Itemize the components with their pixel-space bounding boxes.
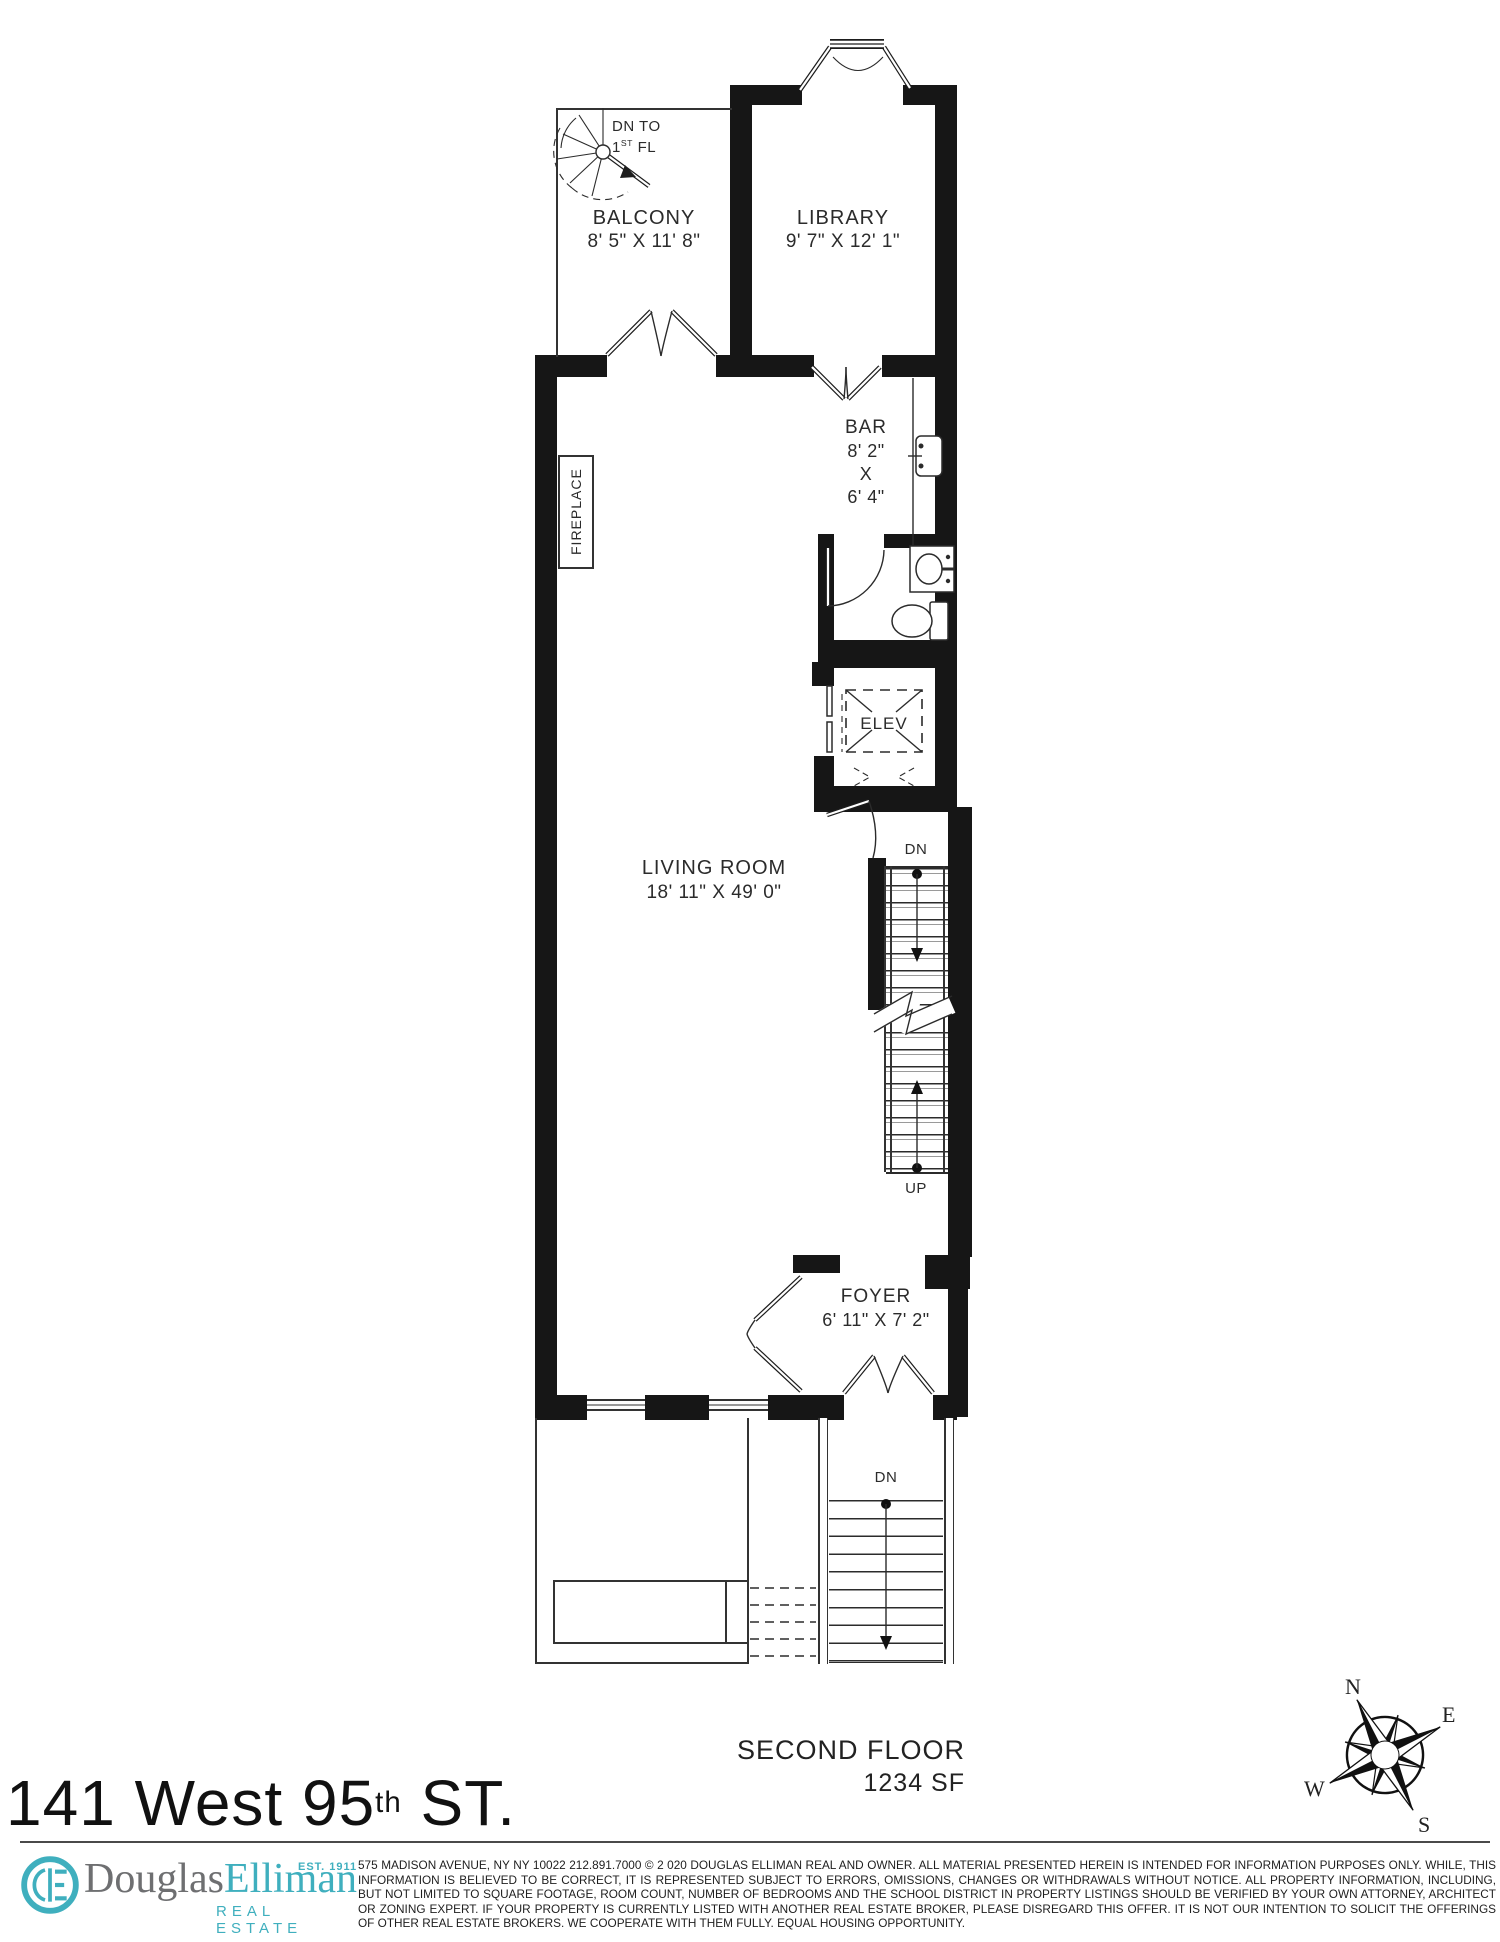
douglas-elliman-monogram-icon xyxy=(20,1855,80,1915)
stairs-dn-label: DN xyxy=(886,841,946,858)
elevator-label: ELEV xyxy=(834,714,934,734)
spiral-stair-note-line1: DN TO xyxy=(612,118,661,135)
floorplan-page: DN TO 1ST FL BALCONY 8' 5" X 11' 8" LIBR… xyxy=(0,0,1500,1942)
foyer-label: FOYER xyxy=(776,1286,976,1308)
window-living-room-right xyxy=(709,1399,768,1411)
wall-balcony-library-divider xyxy=(730,85,752,375)
stair-stringer xyxy=(890,866,892,1172)
stoop-dn-label: DN xyxy=(856,1469,916,1486)
wall-livingroom-top-left xyxy=(535,355,607,377)
floor-title: SECOND FLOOR xyxy=(665,1735,965,1766)
compass-s-label: S xyxy=(1418,1812,1430,1838)
wall-foyer-topleft-stub xyxy=(793,1255,840,1273)
foyer-entry-doors xyxy=(844,1356,933,1393)
wall-bottom-b xyxy=(645,1395,709,1420)
toilet-bowl xyxy=(892,605,932,637)
terrace-planter xyxy=(553,1580,749,1644)
wall-elev-left-stub-top xyxy=(812,662,834,686)
bar-dim3: 6' 4" xyxy=(816,487,916,508)
wall-bottom-a xyxy=(535,1395,587,1420)
elevator-door xyxy=(827,686,832,716)
stoop-rail-right xyxy=(944,1418,954,1664)
library-dims: 9' 7" X 12' 1" xyxy=(743,231,943,253)
wall-powder-elev-divider xyxy=(818,640,957,668)
footer-divider-line xyxy=(20,1841,1490,1843)
wall-bottom-c xyxy=(768,1395,844,1420)
compass-e-label: E xyxy=(1442,1702,1455,1728)
stoop-rail-left xyxy=(818,1418,828,1664)
library-bay-window xyxy=(800,44,910,90)
wall-library-top-left xyxy=(730,85,802,105)
wall-powder-top xyxy=(884,534,935,548)
compass-rose-icon xyxy=(1302,1672,1469,1839)
balcony-label: BALCONY xyxy=(544,207,744,230)
wall-elev-bottom xyxy=(818,786,957,812)
window-living-room-left xyxy=(587,1399,645,1411)
stair-stringer xyxy=(943,866,945,1172)
property-address-title: 141 West 95th ST. xyxy=(6,1766,516,1840)
wall-right-stairs xyxy=(948,807,972,1257)
floor-summary: SECOND FLOOR 1234 SF xyxy=(665,1735,965,1798)
spiral-stair-note-line2: 1ST FL xyxy=(612,138,656,156)
wall-foyer-topright-stub xyxy=(925,1255,970,1289)
stair-stringer xyxy=(884,866,886,1172)
wall-powder-left xyxy=(818,534,834,640)
stoop-treads xyxy=(829,1500,943,1663)
wall-bar-top-right xyxy=(882,355,935,377)
stairs-upper-flight xyxy=(886,866,948,1008)
bar-dim1: 8' 2" xyxy=(816,441,916,462)
wall-left xyxy=(535,355,557,1420)
fireplace-label: FIREPLACE xyxy=(558,455,594,569)
living-room-dims: 18' 11" X 49' 0" xyxy=(564,882,864,904)
bar-dim2: X xyxy=(816,464,916,485)
living-room-label: LIVING ROOM xyxy=(564,857,864,880)
elevator-cab xyxy=(827,686,922,786)
foyer-dims: 6' 11" X 7' 2" xyxy=(776,1310,976,1331)
wall-bottom-d xyxy=(933,1395,957,1420)
legal-disclaimer: 575 MADISON AVENUE, NY NY 10022 212.891.… xyxy=(358,1858,1496,1931)
library-label: LIBRARY xyxy=(743,207,943,230)
stairs-lower-flight xyxy=(886,1032,948,1174)
logo-tagline: REAL ESTATE xyxy=(216,1903,360,1937)
bar-label: BAR xyxy=(816,417,916,439)
elevator-door xyxy=(827,722,832,752)
wall-right-upper xyxy=(935,85,957,807)
terrace-planter-divider xyxy=(725,1582,727,1642)
library-bar-doors xyxy=(812,367,880,399)
logo-est-label: EST. 1911 xyxy=(298,1861,357,1873)
floor-area: 1234 SF xyxy=(665,1769,965,1798)
douglas-elliman-logo: DouglasElliman EST. 1911 REAL ESTATE xyxy=(20,1853,360,1925)
compass-n-label: N xyxy=(1345,1674,1361,1700)
compass-w-label: W xyxy=(1304,1776,1325,1802)
balcony-dims: 8' 5" X 11' 8" xyxy=(544,231,744,253)
stairs-up-label: UP xyxy=(886,1180,946,1197)
